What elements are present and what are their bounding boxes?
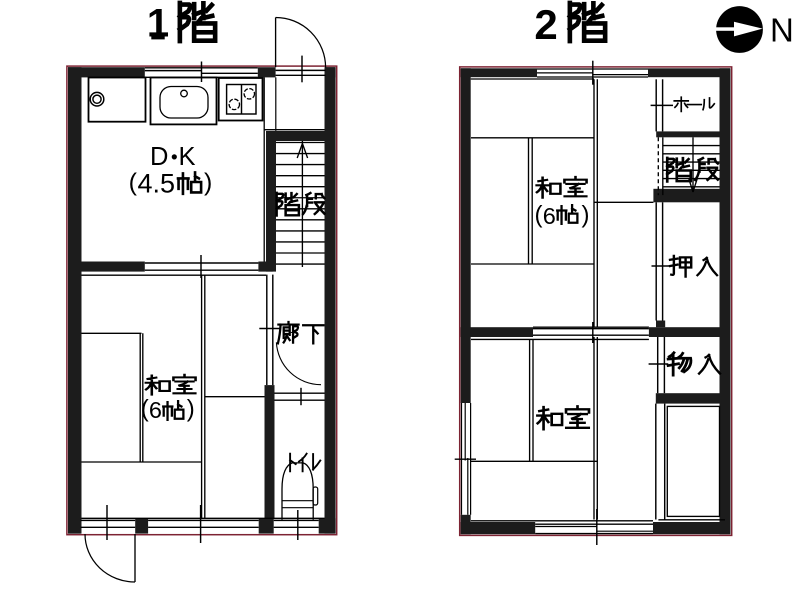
svg-text:4.5: 4.5 [138,169,176,199]
svg-text:(: ( [141,396,149,423]
svg-text:): ) [187,396,195,423]
svg-text:): ) [204,169,212,197]
svg-text:2: 2 [534,1,557,48]
svg-text:6: 6 [149,397,162,423]
svg-text:N: N [770,12,794,49]
svg-text:K: K [179,143,196,171]
svg-text:D: D [150,143,168,171]
svg-text:(: ( [535,202,543,229]
svg-text:6: 6 [543,203,556,229]
svg-text:): ) [582,202,590,229]
svg-text:(: ( [129,169,138,197]
